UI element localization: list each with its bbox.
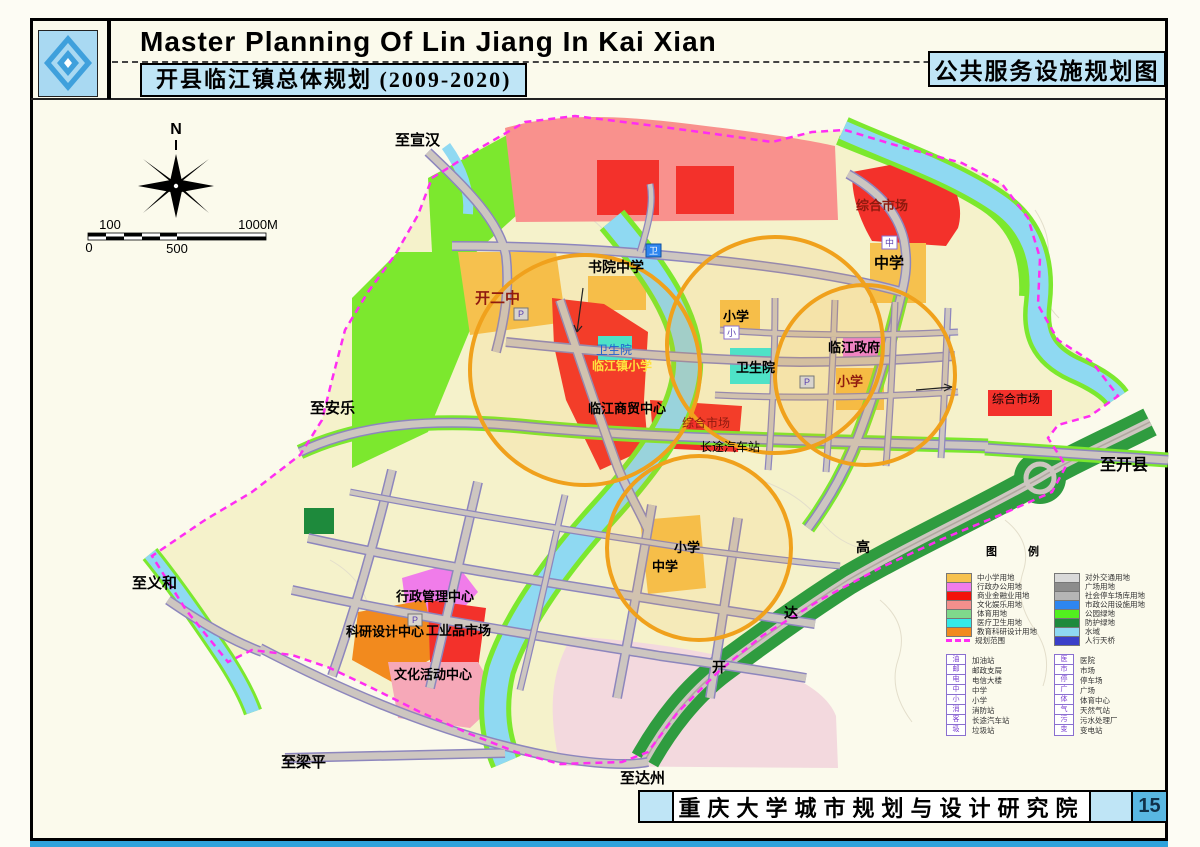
compass-rose: N [138,121,214,218]
planning-map-page: 卫 中 小 P P P 至宣汉 至安乐 至义和 至梁平 至达州 至开县 开二中 … [0,0,1200,847]
map-label-trade-center: 临江商贸中心 [588,401,666,416]
edge-label-anle: 至安乐 [310,399,355,417]
legend-swatch [1054,636,1080,646]
title-block-cell [640,792,674,821]
highway-char: 开 [712,659,726,675]
marker-glyph: P [518,309,524,319]
header-vertical-divider [107,20,111,99]
map-label-central-market: 综合市场 [682,415,730,430]
map-label-east-market: 综合市场 [992,391,1040,406]
legend-item: 人行天桥 [1054,636,1174,645]
edge-label-liangping: 至梁平 [281,753,326,771]
map-label-middle-south: 中学 [652,559,678,574]
marker-glyph: 中 [885,237,894,248]
logo-diamond-icon [39,31,97,96]
map-label-research-center: 科研设计中心 [346,624,424,639]
title-block-bar: 重庆大学城市规划与设计研究院 15 [638,790,1168,823]
edge-label-yihe: 至义和 [132,574,177,592]
garbage-station-icon: 圾 [946,724,966,736]
scale-100: 100 [99,217,121,232]
legend-zone-items: 中小学用地 行政办公用地 商业金融业用地 文化娱乐用地 体育用地 医疗卫生用地 … [946,573,1176,645]
institute-name: 重庆大学城市规划与设计研究院 [674,792,1091,821]
map-label-industrial-market: 工业品市场 [426,623,491,638]
institute-logo [38,30,98,97]
page-title-cn: 开县临江镇总体规划 (2009-2020) [140,63,527,97]
highway-char: 高 [856,539,870,555]
zone-north-commercial-2 [676,166,734,214]
map-label-primary-north: 小学 [723,309,749,324]
marker-glyph: 卫 [649,246,658,256]
legend-symbol-items: 油加油站 邮邮政支局 电电信大楼 中中学 小小学 消消防站 客长途汽车站 圾垃圾… [946,655,1176,735]
marker-glyph: P [804,377,810,387]
map-label-primary-south: 小学 [674,540,700,555]
map-label-bus-station: 长途汽车站 [700,439,760,454]
map-label-government: 临江政府 [828,340,880,355]
header-divider [31,98,1166,100]
service-circle-east [775,285,955,465]
marker-glyph: 小 [727,328,736,338]
map-label-culture-center: 文化活动中心 [394,667,472,682]
map-label-admin-center: 行政管理中心 [395,589,474,604]
page-title-en: Master Planning Of Lin Jiang In Kai Xian [140,26,717,58]
edge-label-kaixian: 至开县 [1100,456,1148,474]
zone-north-residential [505,117,838,222]
scale-bar: 100 1000M 0 500 [85,217,277,256]
map-label-kai2zhong: 开二中 [475,289,520,307]
scale-0: 0 [85,240,92,255]
title-block-cell [1091,792,1133,821]
legend-symbol: 圾垃圾站 [946,725,1050,735]
legend-swatch-dashed [946,639,970,642]
map-label-hospital-west: 卫生院 [596,343,632,357]
legend-title: 图 例 [946,543,1176,559]
scale-1000m: 1000M [238,217,278,232]
map-label-linjiang-primary: 临江镇小学 [592,358,652,373]
bottom-blue-strip [30,841,1168,847]
legend-item-boundary: 规划范围 [946,636,1050,645]
substation-icon: 变 [1054,724,1074,736]
scale-500: 500 [166,241,188,256]
map-label-ne-market: 综合市场 [856,198,908,213]
legend-symbol: 变变电站 [1054,725,1174,735]
legend-swatch [946,627,972,637]
map-label-primary-east: 小学 [837,374,863,389]
edge-label-dazhou: 至达州 [620,769,665,787]
highway-char: 达 [784,605,798,621]
sheet-name-box: 公共服务设施规划图 [928,51,1166,87]
zone-west-facility [304,508,334,534]
page-number: 15 [1133,792,1166,821]
edge-label-xuanhan: 至宣汉 [395,131,441,149]
map-label-shuyuan: 书院中学 [588,259,644,275]
legend-panel: 图 例 中小学用地 行政办公用地 商业金融业用地 文化娱乐用地 体育用地 医疗卫… [946,543,1176,735]
map-label-hospital-center: 卫生院 [736,360,775,375]
map-label-ne-middle-school: 中学 [874,254,904,272]
compass-north-label: N [170,121,182,138]
